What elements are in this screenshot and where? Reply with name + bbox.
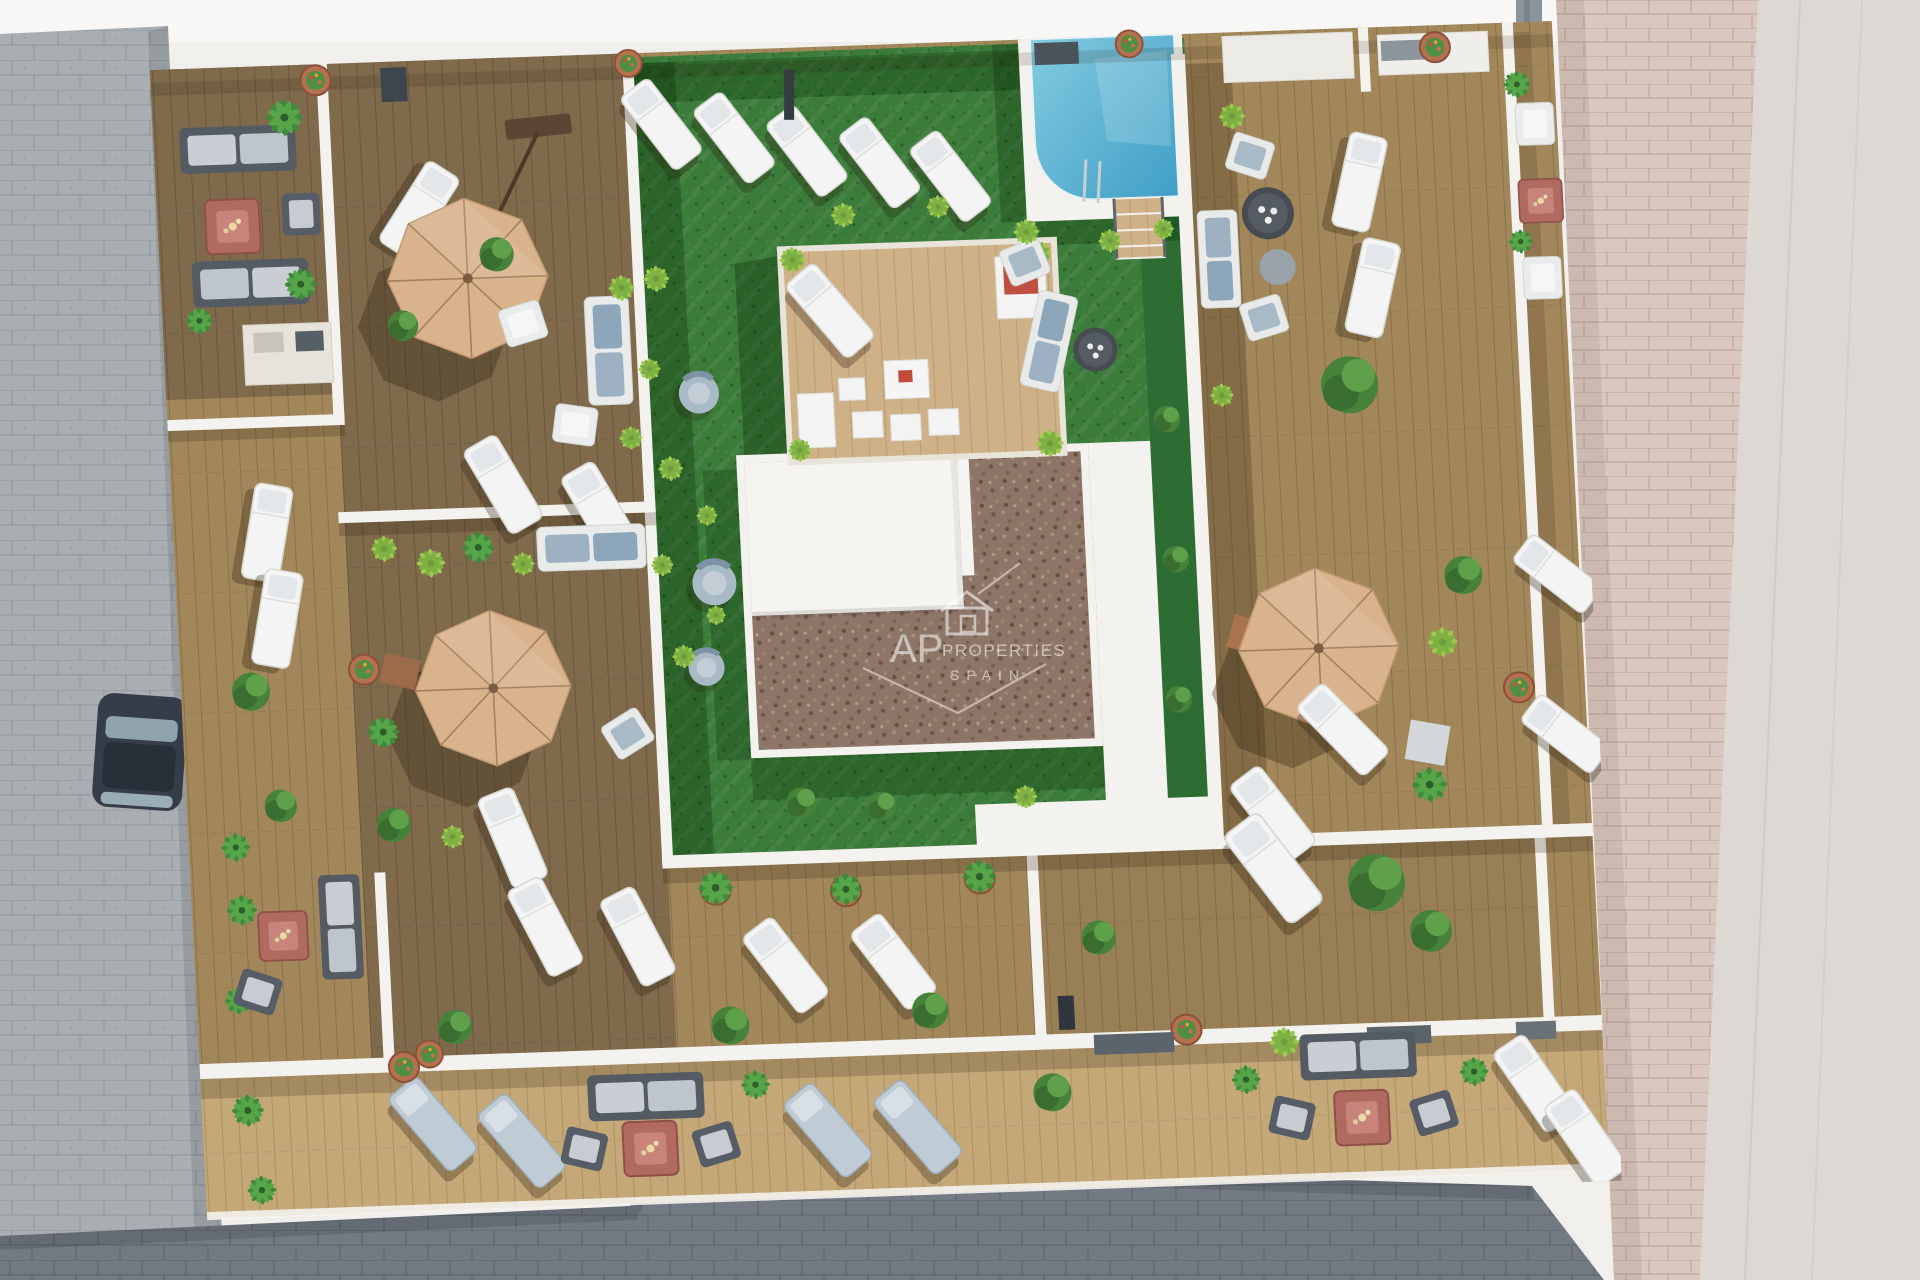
- sofa: [318, 874, 365, 980]
- aerial-render: AP PROPERTIES SPAIN: [0, 0, 1920, 1280]
- fire-table: [204, 199, 261, 255]
- rooftop-unit: [380, 67, 408, 102]
- vent-grille: [1034, 42, 1079, 66]
- fire-table: [1334, 1090, 1391, 1146]
- fire-table: [622, 1121, 679, 1177]
- watermark-brand-suffix: PROPERTIES: [942, 641, 1066, 660]
- planter-box: [1094, 1032, 1175, 1055]
- central-roof-core: [736, 443, 1103, 758]
- sofa: [584, 296, 633, 406]
- heater-post: [784, 70, 794, 120]
- armchair: [281, 192, 321, 235]
- watermark-brand: AP: [890, 627, 943, 671]
- fire-table: [1518, 178, 1563, 223]
- chair: [552, 403, 598, 446]
- sofa: [536, 524, 646, 572]
- chair: [1515, 102, 1555, 145]
- fire-table: [258, 911, 309, 961]
- flower-pot: [348, 654, 380, 685]
- white-roof-volume: [744, 456, 964, 616]
- chair: [1523, 256, 1563, 299]
- flower-pot: [415, 1040, 443, 1068]
- flower-pot: [1503, 672, 1535, 703]
- sofa: [1197, 210, 1241, 309]
- flower-pot: [1171, 1014, 1203, 1045]
- sofa: [587, 1072, 705, 1122]
- flower-pot: [388, 1051, 420, 1082]
- parked-car: [91, 692, 189, 812]
- sofa: [1299, 1031, 1417, 1081]
- square-side-table: [1405, 719, 1451, 765]
- bbq-unit: [1058, 995, 1076, 1030]
- rooftop-plan-render: AP PROPERTIES SPAIN: [0, 0, 1920, 1280]
